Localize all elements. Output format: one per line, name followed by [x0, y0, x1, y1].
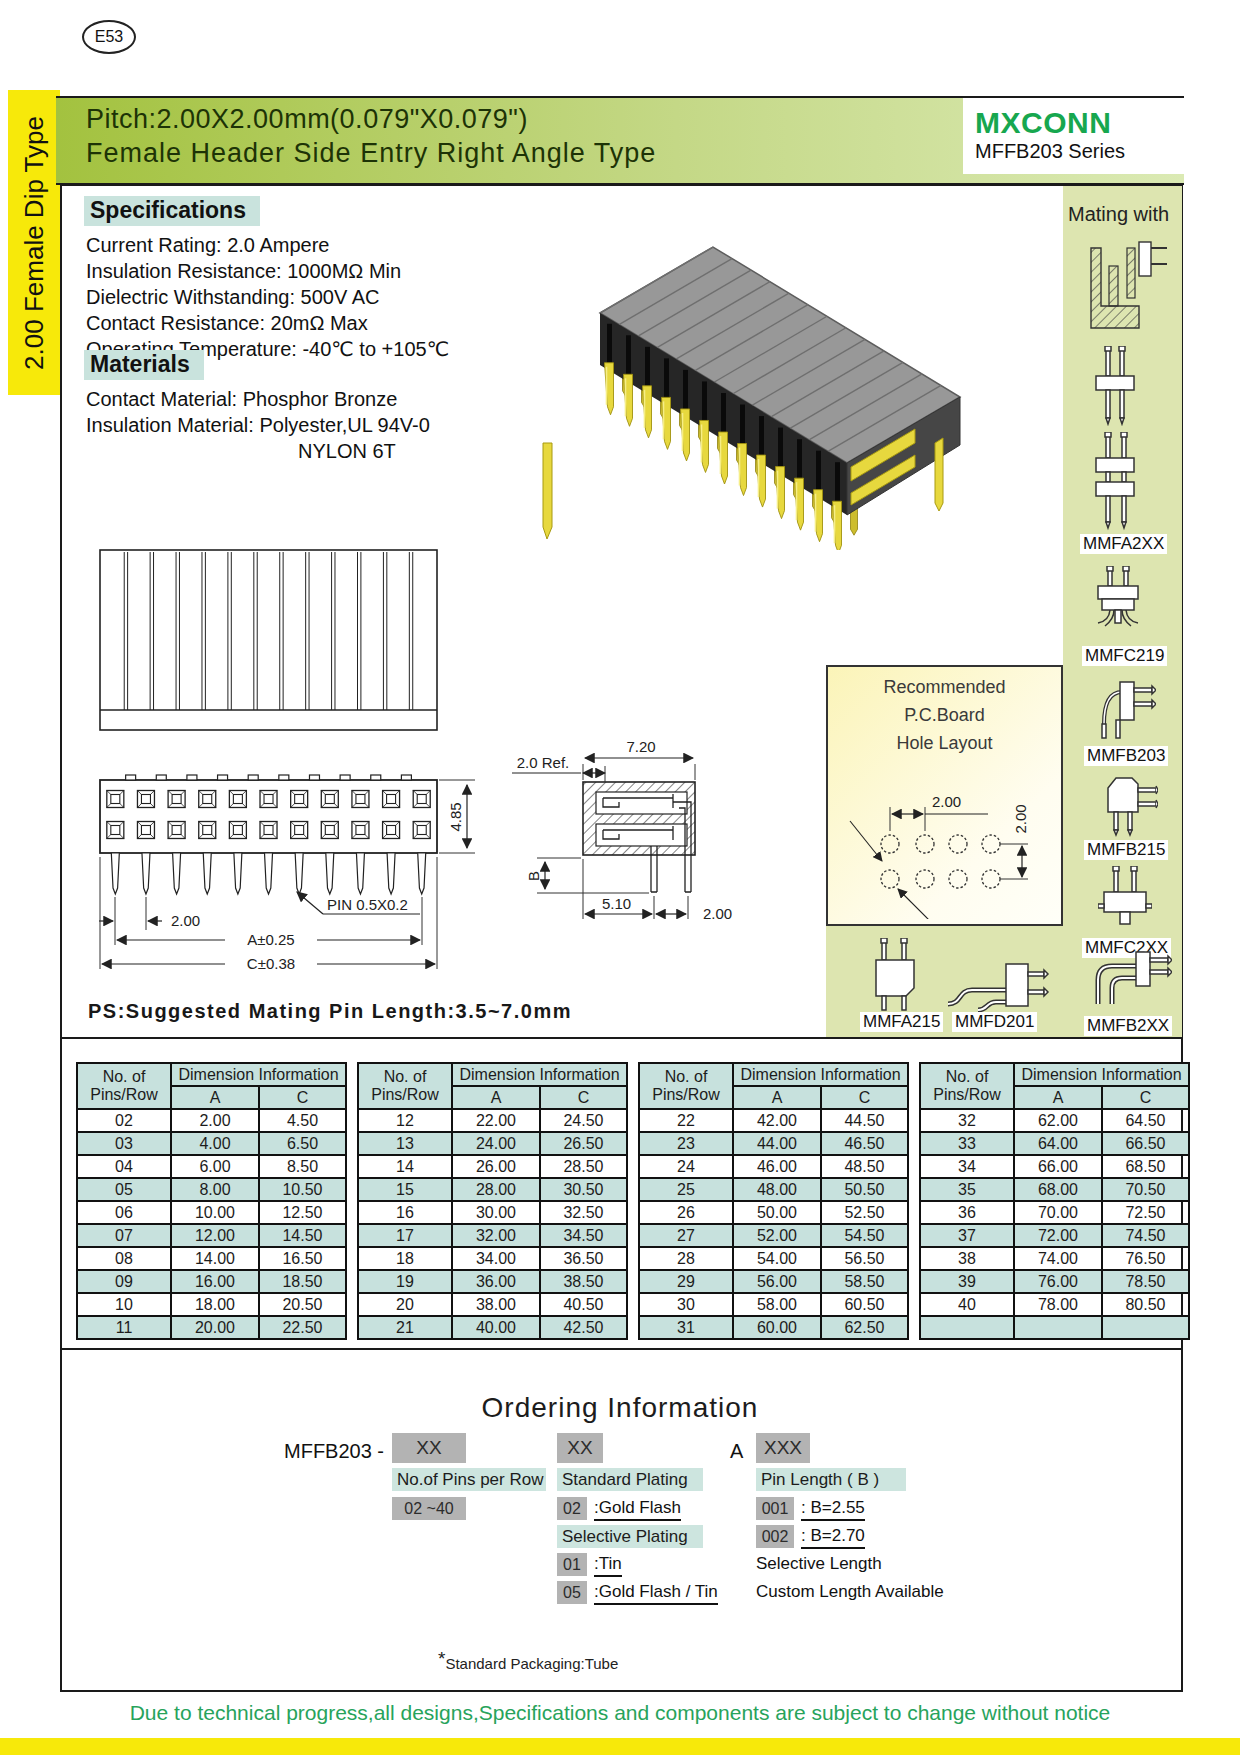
cell-a: 66.00: [1014, 1155, 1102, 1178]
cell-a: 50.00: [733, 1201, 821, 1224]
mating-icon-smd-header: [1098, 866, 1152, 938]
cell-pins: 38: [920, 1247, 1014, 1270]
divider: [62, 1348, 1183, 1350]
part-code-pins: XX: [392, 1433, 466, 1463]
cell-pins: 37: [920, 1224, 1014, 1247]
cell-pins: 23: [639, 1132, 733, 1155]
packaging-note: *Standard Packaging:Tube: [438, 1648, 618, 1672]
specifications-heading: Specifications: [84, 196, 260, 226]
cell-a: 36.00: [452, 1270, 540, 1293]
cell-c: 46.50: [821, 1132, 908, 1155]
cell-a: 2.00: [171, 1109, 259, 1132]
cell-a: 28.00: [452, 1178, 540, 1201]
table-row: [920, 1316, 1189, 1339]
cell-pins: 32: [920, 1109, 1014, 1132]
table-row: 1528.0030.50: [358, 1178, 627, 1201]
cell-pins: 33: [920, 1132, 1014, 1155]
table-row: 2956.0058.50: [639, 1270, 908, 1293]
cell-pins: 16: [358, 1201, 452, 1224]
cell-c: 76.50: [1102, 1247, 1189, 1270]
table-row: 2854.0056.50: [639, 1247, 908, 1270]
mating-part-label: MMFA2XX: [1080, 534, 1167, 554]
cell-pins: 18: [358, 1247, 452, 1270]
ordering-length2-code: 002: [756, 1525, 794, 1548]
table-row: 1834.0036.50: [358, 1247, 627, 1270]
cell-c: 66.50: [1102, 1132, 1189, 1155]
cell-pins: 21: [358, 1316, 452, 1339]
ordering-plating1-label: :Gold Flash: [594, 1498, 681, 1521]
col-pins-header: No. ofPins/Row: [639, 1063, 733, 1109]
cell-a: 60.00: [733, 1316, 821, 1339]
cell-pins: 14: [358, 1155, 452, 1178]
pcb-title-line1: Recommended: [828, 667, 1061, 701]
cell-c: 50.50: [821, 1178, 908, 1201]
specifications-list: Current Rating: 2.0 Ampere Insulation Re…: [86, 232, 516, 362]
mating-icon-right-angle-smd: [1086, 948, 1172, 1012]
mating-icon-block-right-angle: [1096, 770, 1158, 842]
material-item: Insulation Material: Polyester,UL 94V-0: [86, 412, 516, 438]
col-a-header: A: [452, 1086, 540, 1109]
brand-box: MXCONN MFFB203 Series: [963, 98, 1184, 174]
col-dim-header: Dimension Information: [733, 1063, 908, 1086]
cell-a: 18.00: [171, 1293, 259, 1316]
cell-c: 4.50: [259, 1109, 346, 1132]
cell-c: 56.50: [821, 1247, 908, 1270]
cell-c: 36.50: [540, 1247, 627, 1270]
cell-a: 56.00: [733, 1270, 821, 1293]
spec-item: Insulation Resistance: 1000MΩ Min: [86, 258, 516, 284]
cell-c: 16.50: [259, 1247, 346, 1270]
cell-pins: 24: [639, 1155, 733, 1178]
cell-c: 64.50: [1102, 1109, 1189, 1132]
col-c-header: C: [259, 1086, 346, 1109]
cell-a: 26.00: [452, 1155, 540, 1178]
spec-item: Contact Resistance: 20mΩ Max: [86, 310, 516, 336]
table-row: 2242.0044.50: [639, 1109, 908, 1132]
cell-pins: 10: [77, 1293, 171, 1316]
cell-pins: 31: [639, 1316, 733, 1339]
dim-height-label: 4.85: [447, 802, 464, 831]
dimension-table: No. ofPins/RowDimension InformationAC224…: [638, 1062, 909, 1340]
cell-pins: 15: [358, 1178, 452, 1201]
cell-a: 58.00: [733, 1293, 821, 1316]
cell-a: [1014, 1316, 1102, 1339]
cell-a: 74.00: [1014, 1247, 1102, 1270]
dimension-drawing: 4.85 2.00 PIN 0.5X0.2 A±0.25 C±0.38: [75, 540, 755, 980]
page-code: E53: [82, 20, 136, 54]
table-row: 2446.0048.50: [639, 1155, 908, 1178]
mating-icon-s-curve-header: [944, 958, 1052, 1016]
table-row: 3364.0066.50: [920, 1132, 1189, 1155]
cell-pins: 07: [77, 1224, 171, 1247]
cell-pins: 03: [77, 1132, 171, 1155]
table-row: 2038.0040.50: [358, 1293, 627, 1316]
cell-a: 72.00: [1014, 1224, 1102, 1247]
product-end-pin: [935, 438, 943, 511]
table-row: 2752.0054.50: [639, 1224, 908, 1247]
ordering-length-head: Pin Length ( B ): [756, 1468, 906, 1491]
mating-part-label: MMFC219: [1082, 646, 1167, 666]
cell-c: 48.50: [821, 1155, 908, 1178]
datasheet-page: E53 2.00 Female Dip Type Pitch:2.00X2.00…: [0, 0, 1240, 1755]
col-dim-header: Dimension Information: [1014, 1063, 1189, 1086]
cell-a: 34.00: [452, 1247, 540, 1270]
table-row: 2344.0046.50: [639, 1132, 908, 1155]
table-row: 0916.0018.50: [77, 1270, 346, 1293]
mating-icon-right-angle-header: [1094, 676, 1156, 744]
table-row: 0814.0016.50: [77, 1247, 346, 1270]
cell-a: 62.00: [1014, 1109, 1102, 1132]
pcb-layout-drawing: 2.00 2.00: [828, 759, 1061, 919]
table-row: 1018.0020.50: [77, 1293, 346, 1316]
table-row: 1732.0034.50: [358, 1224, 627, 1247]
cell-a: 16.00: [171, 1270, 259, 1293]
cell-a: 76.00: [1014, 1270, 1102, 1293]
cell-pins: 19: [358, 1270, 452, 1293]
cell-c: 42.50: [540, 1316, 627, 1339]
materials-heading-label: Materials: [84, 350, 204, 380]
cell-pins: 13: [358, 1132, 452, 1155]
table-row: 046.008.50: [77, 1155, 346, 1178]
bottom-bar: [0, 1738, 1240, 1755]
part-code-fixed: A: [730, 1440, 743, 1463]
cell-a: 46.00: [733, 1155, 821, 1178]
ordering-plating-head1: Standard Plating: [557, 1468, 703, 1491]
cell-a: 30.00: [452, 1201, 540, 1224]
table-row: 1324.0026.50: [358, 1132, 627, 1155]
cell-pins: 02: [77, 1109, 171, 1132]
mating-part-label: MMFB2XX: [1084, 1016, 1172, 1036]
cell-pins: 04: [77, 1155, 171, 1178]
ordering-plating2-label: :Tin: [594, 1554, 622, 1577]
pcb-layout-box: Recommended P.C.Board Hole Layout 2.00 2…: [826, 665, 1063, 926]
part-code-plating: XX: [557, 1433, 603, 1463]
spec-item: Current Rating: 2.0 Ampere: [86, 232, 516, 258]
dimension-table: No. ofPins/RowDimension InformationAC022…: [76, 1062, 347, 1340]
col-a-header: A: [733, 1086, 821, 1109]
ordering-plating3-code: 05: [557, 1581, 587, 1604]
ordering-length-note2: Custom Length Available: [756, 1582, 944, 1602]
brand-logo: MXCONN: [975, 106, 1184, 140]
col-dim-header: Dimension Information: [171, 1063, 346, 1086]
ordering-plating-head2: Selective Plating: [557, 1525, 703, 1548]
ps-note: PS:Suggested Mating Pin Length:3.5~7.0mm: [88, 1000, 572, 1023]
cell-pins: 06: [77, 1201, 171, 1224]
table-row: 3262.0064.50: [920, 1109, 1189, 1132]
cell-a: 8.00: [171, 1178, 259, 1201]
cell-pins: 27: [639, 1224, 733, 1247]
cell-c: 30.50: [540, 1178, 627, 1201]
cell-c: 26.50: [540, 1132, 627, 1155]
table-row: 1426.0028.50: [358, 1155, 627, 1178]
cell-pins: 39: [920, 1270, 1014, 1293]
ordering-plating1-code: 02: [557, 1497, 587, 1520]
cell-c: 32.50: [540, 1201, 627, 1224]
ordering-length1-code: 001: [756, 1497, 794, 1520]
side-tab-label: 2.00 Female Dip Type: [19, 116, 50, 370]
cell-a: 48.00: [733, 1178, 821, 1201]
cell-pins: 08: [77, 1247, 171, 1270]
cell-c: 38.50: [540, 1270, 627, 1293]
cell-c: 68.50: [1102, 1155, 1189, 1178]
mating-icon-stacked-header: [1090, 432, 1140, 532]
materials-heading: Materials: [84, 350, 204, 380]
dim-pitch-label: 2.00: [171, 912, 200, 929]
ordering-length1-label: : B=2.55: [801, 1498, 865, 1521]
material-item: NYLON 6T: [86, 438, 516, 464]
table-row: 0610.0012.50: [77, 1201, 346, 1224]
dim-a-label: A±0.25: [247, 931, 294, 948]
cell-a: 64.00: [1014, 1132, 1102, 1155]
cell-a: 54.00: [733, 1247, 821, 1270]
page-code-label: E53: [95, 28, 123, 46]
table-row: 1120.0022.50: [77, 1316, 346, 1339]
cell-pins: 35: [920, 1178, 1014, 1201]
ordering-plating3-label: :Gold Flash / Tin: [594, 1582, 718, 1605]
col-c-header: C: [540, 1086, 627, 1109]
ordering-pins-range: 02 ~40: [392, 1497, 466, 1520]
dim-bottom2-label: 2.00: [703, 905, 732, 922]
cell-a: 70.00: [1014, 1201, 1102, 1224]
cell-a: 14.00: [171, 1247, 259, 1270]
cell-c: 54.50: [821, 1224, 908, 1247]
cell-a: 42.00: [733, 1109, 821, 1132]
cell-pins: 17: [358, 1224, 452, 1247]
dimension-table: No. ofPins/RowDimension InformationAC326…: [919, 1062, 1190, 1340]
cell-c: 60.50: [821, 1293, 908, 1316]
pin-size-label: PIN 0.5X0.2: [327, 896, 408, 913]
dim-ref-label: 2.0 Ref.: [517, 754, 570, 771]
table-row: 3670.0072.50: [920, 1201, 1189, 1224]
series-label: MFFB203 Series: [975, 140, 1184, 163]
cell-a: 10.00: [171, 1201, 259, 1224]
cell-a: 78.00: [1014, 1293, 1102, 1316]
cell-a: 6.00: [171, 1155, 259, 1178]
cell-a: 24.00: [452, 1132, 540, 1155]
cell-pins: 29: [639, 1270, 733, 1293]
col-c-header: C: [1102, 1086, 1189, 1109]
cell-c: 52.50: [821, 1201, 908, 1224]
side-tab: 2.00 Female Dip Type: [8, 90, 60, 395]
cell-pins: 34: [920, 1155, 1014, 1178]
col-dim-header: Dimension Information: [452, 1063, 627, 1086]
cell-c: 12.50: [259, 1201, 346, 1224]
cell-pins: 25: [639, 1178, 733, 1201]
ordering-length-note1: Selective Length: [756, 1554, 882, 1574]
product-photo: [495, 205, 965, 550]
ordering-plating2-code: 01: [557, 1553, 587, 1576]
dimension-table: No. ofPins/RowDimension InformationAC122…: [357, 1062, 628, 1340]
mating-part-label: MMFA215: [860, 1012, 943, 1032]
cell-pins: 22: [639, 1109, 733, 1132]
dim-width-label: 7.20: [626, 738, 655, 755]
materials-list: Contact Material: Phosphor Bronze Insula…: [86, 386, 516, 464]
cell-pins: 12: [358, 1109, 452, 1132]
dim-b-label: B: [525, 871, 542, 881]
table-row: 3058.0060.50: [639, 1293, 908, 1316]
cell-c: 22.50: [259, 1316, 346, 1339]
dimension-tables: No. ofPins/RowDimension InformationAC022…: [76, 1062, 1190, 1340]
cell-pins: 40: [920, 1293, 1014, 1316]
pcb-dim-vertical: 2.00: [1012, 804, 1029, 833]
table-row: 3976.0078.50: [920, 1270, 1189, 1293]
table-row: 1630.0032.50: [358, 1201, 627, 1224]
cell-a: 32.00: [452, 1224, 540, 1247]
col-pins-header: No. ofPins/Row: [358, 1063, 452, 1109]
cell-c: 20.50: [259, 1293, 346, 1316]
table-row: 4078.0080.50: [920, 1293, 1189, 1316]
cell-pins: [920, 1316, 1014, 1339]
part-code-length: XXX: [756, 1433, 810, 1463]
dim-c-label: C±0.38: [247, 955, 295, 972]
table-row: 3874.0076.50: [920, 1247, 1189, 1270]
cell-c: 44.50: [821, 1109, 908, 1132]
cell-c: 6.50: [259, 1132, 346, 1155]
cell-c: 18.50: [259, 1270, 346, 1293]
mating-heading: Mating with: [1068, 203, 1169, 226]
cell-pins: 09: [77, 1270, 171, 1293]
ordering-pins-head: No.of Pins per Row: [392, 1468, 546, 1491]
cell-c: 62.50: [821, 1316, 908, 1339]
cell-pins: 05: [77, 1178, 171, 1201]
cell-c: 72.50: [1102, 1201, 1189, 1224]
product-stray-pin: [543, 443, 552, 539]
cell-pins: 26: [639, 1201, 733, 1224]
dim-bottom1-label: 5.10: [602, 895, 631, 912]
pcb-title-line2: P.C.Board: [828, 701, 1061, 729]
cell-a: 4.00: [171, 1132, 259, 1155]
cell-c: 8.50: [259, 1155, 346, 1178]
cell-c: 70.50: [1102, 1178, 1189, 1201]
table-row: 058.0010.50: [77, 1178, 346, 1201]
table-row: 3160.0062.50: [639, 1316, 908, 1339]
divider: [62, 1037, 1183, 1039]
spec-item: Dielectric Withstanding: 500V AC: [86, 284, 516, 310]
mating-part-label: MMFD201: [952, 1012, 1037, 1032]
cell-pins: 28: [639, 1247, 733, 1270]
table-row: 2140.0042.50: [358, 1316, 627, 1339]
cell-a: 38.00: [452, 1293, 540, 1316]
col-c-header: C: [821, 1086, 908, 1109]
cell-a: 22.00: [452, 1109, 540, 1132]
cell-pins: 30: [639, 1293, 733, 1316]
page-title-line1: Pitch:2.00X2.00mm(0.079"X0.079"): [86, 104, 528, 135]
specifications-heading-label: Specifications: [84, 196, 260, 226]
cell-a: 40.00: [452, 1316, 540, 1339]
cell-c: 78.50: [1102, 1270, 1189, 1293]
table-row: 1936.0038.50: [358, 1270, 627, 1293]
cell-pins: 36: [920, 1201, 1014, 1224]
cell-c: 58.50: [821, 1270, 908, 1293]
cell-pins: 20: [358, 1293, 452, 1316]
mating-section-icon: [1083, 240, 1167, 336]
col-pins-header: No. ofPins/Row: [920, 1063, 1014, 1109]
page-title-line2: Female Header Side Entry Right Angle Typ…: [86, 138, 656, 169]
cell-a: 68.00: [1014, 1178, 1102, 1201]
ordering-title: Ordering Information: [0, 1392, 1240, 1424]
table-row: 2650.0052.50: [639, 1201, 908, 1224]
packaging-note-text: Standard Packaging:Tube: [445, 1655, 618, 1672]
cell-c: 28.50: [540, 1155, 627, 1178]
table-row: 3466.0068.50: [920, 1155, 1189, 1178]
col-pins-header: No. ofPins/Row: [77, 1063, 171, 1109]
cell-a: 44.00: [733, 1132, 821, 1155]
cell-pins: 11: [77, 1316, 171, 1339]
footer-note: Due to technical progress,all designs,Sp…: [0, 1701, 1240, 1725]
mating-icon-dip-header: [868, 938, 922, 1014]
pcb-title-line3: Hole Layout: [828, 729, 1061, 757]
mating-part-label: MMFB215: [1084, 840, 1168, 860]
material-item: Contact Material: Phosphor Bronze: [86, 386, 516, 412]
table-row: 3772.0074.50: [920, 1224, 1189, 1247]
table-row: 3568.0070.50: [920, 1178, 1189, 1201]
mating-icon-bent-feet-header: [1088, 566, 1148, 642]
col-a-header: A: [1014, 1086, 1102, 1109]
table-row: 022.004.50: [77, 1109, 346, 1132]
cell-a: 12.00: [171, 1224, 259, 1247]
table-row: 1222.0024.50: [358, 1109, 627, 1132]
pcb-dim-horizontal: 2.00: [932, 793, 961, 810]
cell-c: 74.50: [1102, 1224, 1189, 1247]
table-row: 034.006.50: [77, 1132, 346, 1155]
cell-c: 14.50: [259, 1224, 346, 1247]
cell-a: 20.00: [171, 1316, 259, 1339]
cell-c: 80.50: [1102, 1293, 1189, 1316]
ordering-length2-label: : B=2.70: [801, 1526, 865, 1549]
cell-c: 40.50: [540, 1293, 627, 1316]
part-number-prefix: MFFB203 -: [284, 1440, 384, 1463]
col-a-header: A: [171, 1086, 259, 1109]
mating-part-label: MMFB203: [1084, 746, 1168, 766]
mating-icon-straight-header: [1092, 346, 1138, 426]
table-row: 2548.0050.50: [639, 1178, 908, 1201]
cell-a: 52.00: [733, 1224, 821, 1247]
cell-c: 34.50: [540, 1224, 627, 1247]
table-row: 0712.0014.50: [77, 1224, 346, 1247]
cell-c: 24.50: [540, 1109, 627, 1132]
cell-c: [1102, 1316, 1189, 1339]
cell-c: 10.50: [259, 1178, 346, 1201]
